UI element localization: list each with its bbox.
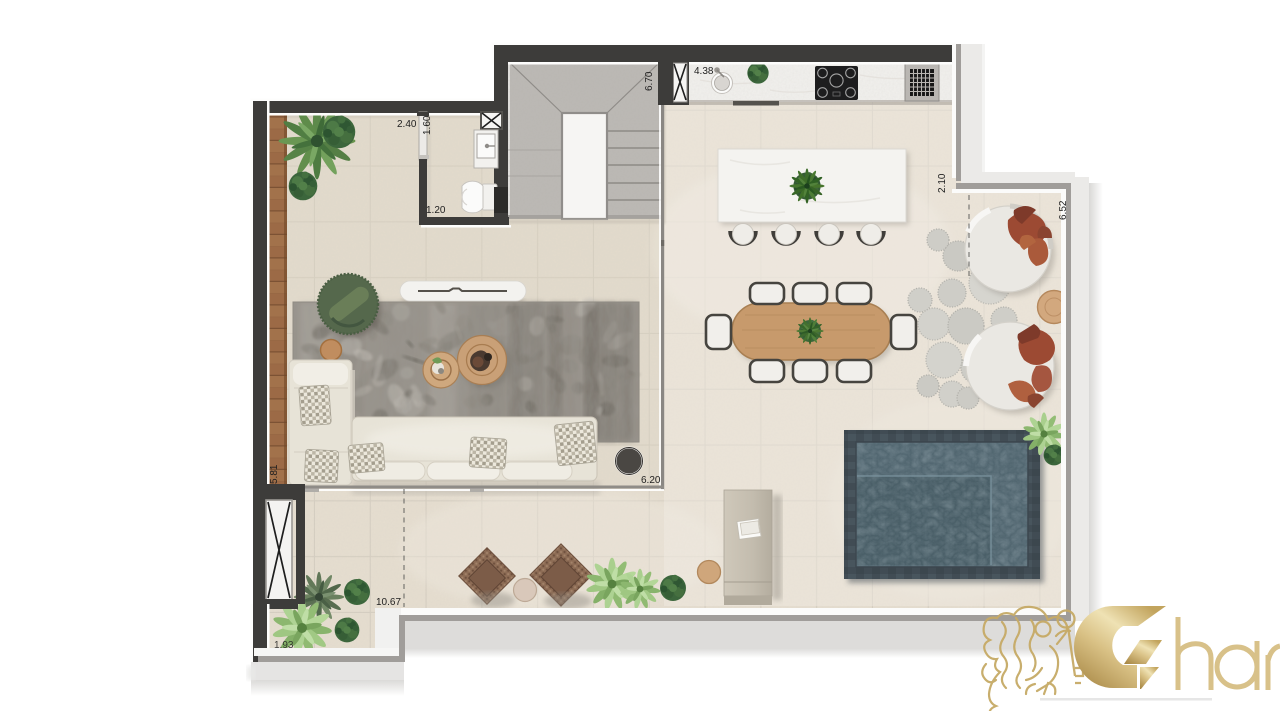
- svg-text:10.67: 10.67: [376, 597, 401, 608]
- svg-text:6.70: 6.70: [644, 71, 655, 91]
- svg-text:1.93: 1.93: [274, 640, 294, 651]
- svg-text:1.20: 1.20: [426, 205, 446, 216]
- svg-text:2.40: 2.40: [397, 119, 417, 130]
- svg-text:4.38: 4.38: [694, 66, 714, 77]
- svg-text:2.10: 2.10: [937, 173, 948, 193]
- svg-text:6.52: 6.52: [1058, 200, 1069, 220]
- svg-text:1.60: 1.60: [422, 115, 433, 135]
- svg-text:5.81: 5.81: [269, 464, 280, 484]
- svg-text:6.20: 6.20: [641, 475, 661, 486]
